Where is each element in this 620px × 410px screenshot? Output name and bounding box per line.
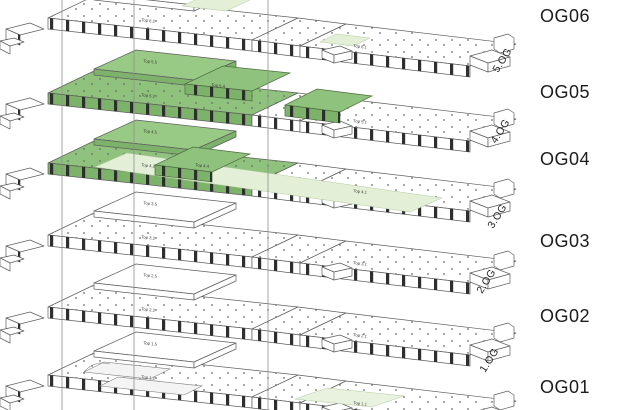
floor-drawing-og06: Top 6.2 Top 6.1 (0, 0, 516, 77)
floor-label-og03: OG03 (540, 231, 590, 252)
exploded-axonometric-drawing: Top 6.2 Top 6.1 Top 5.5 Top 5.2 Top 5.4 … (0, 0, 620, 410)
floor-label-og04: OG04 (540, 149, 590, 170)
floor-label-og05: OG05 (540, 82, 590, 103)
architectural-exploded-floor-diagram: Top 6.2 Top 6.1 Top 5.5 Top 5.2 Top 5.4 … (0, 0, 620, 410)
floor-label-og01: OG01 (540, 377, 590, 398)
floor-label-og06: OG06 (540, 6, 590, 27)
floor-label-og02: OG02 (540, 306, 590, 327)
